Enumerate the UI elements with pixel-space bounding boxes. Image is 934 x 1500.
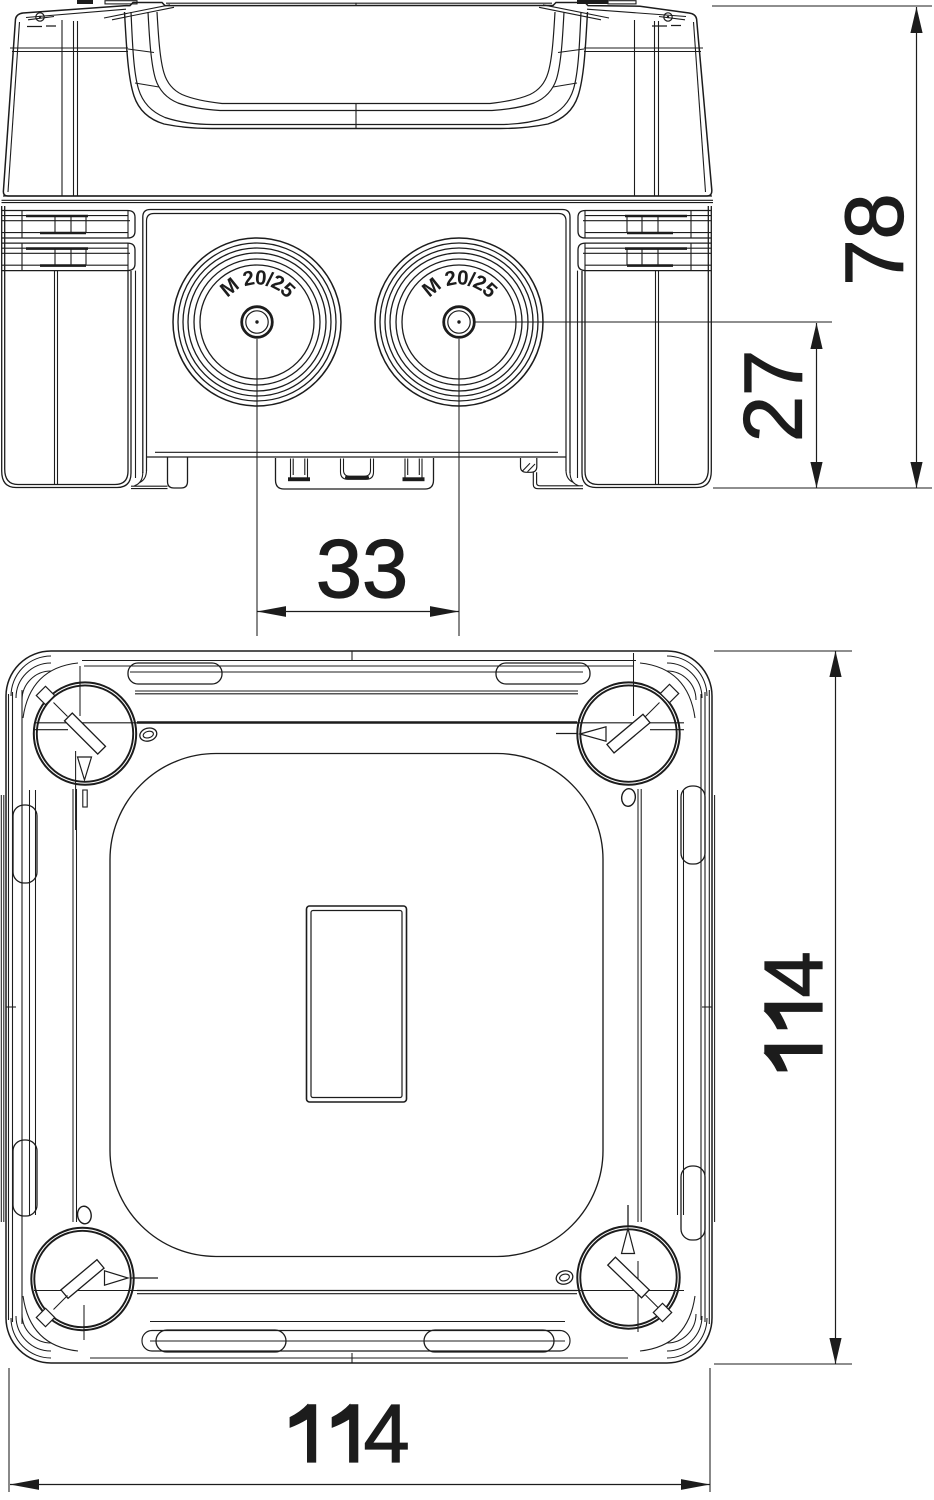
svg-text:33: 33 — [316, 522, 408, 615]
svg-text:4: 4 — [747, 951, 840, 997]
svg-text:27: 27 — [727, 350, 820, 442]
svg-text:78: 78 — [828, 193, 921, 285]
svg-text:4: 4 — [364, 1387, 410, 1480]
